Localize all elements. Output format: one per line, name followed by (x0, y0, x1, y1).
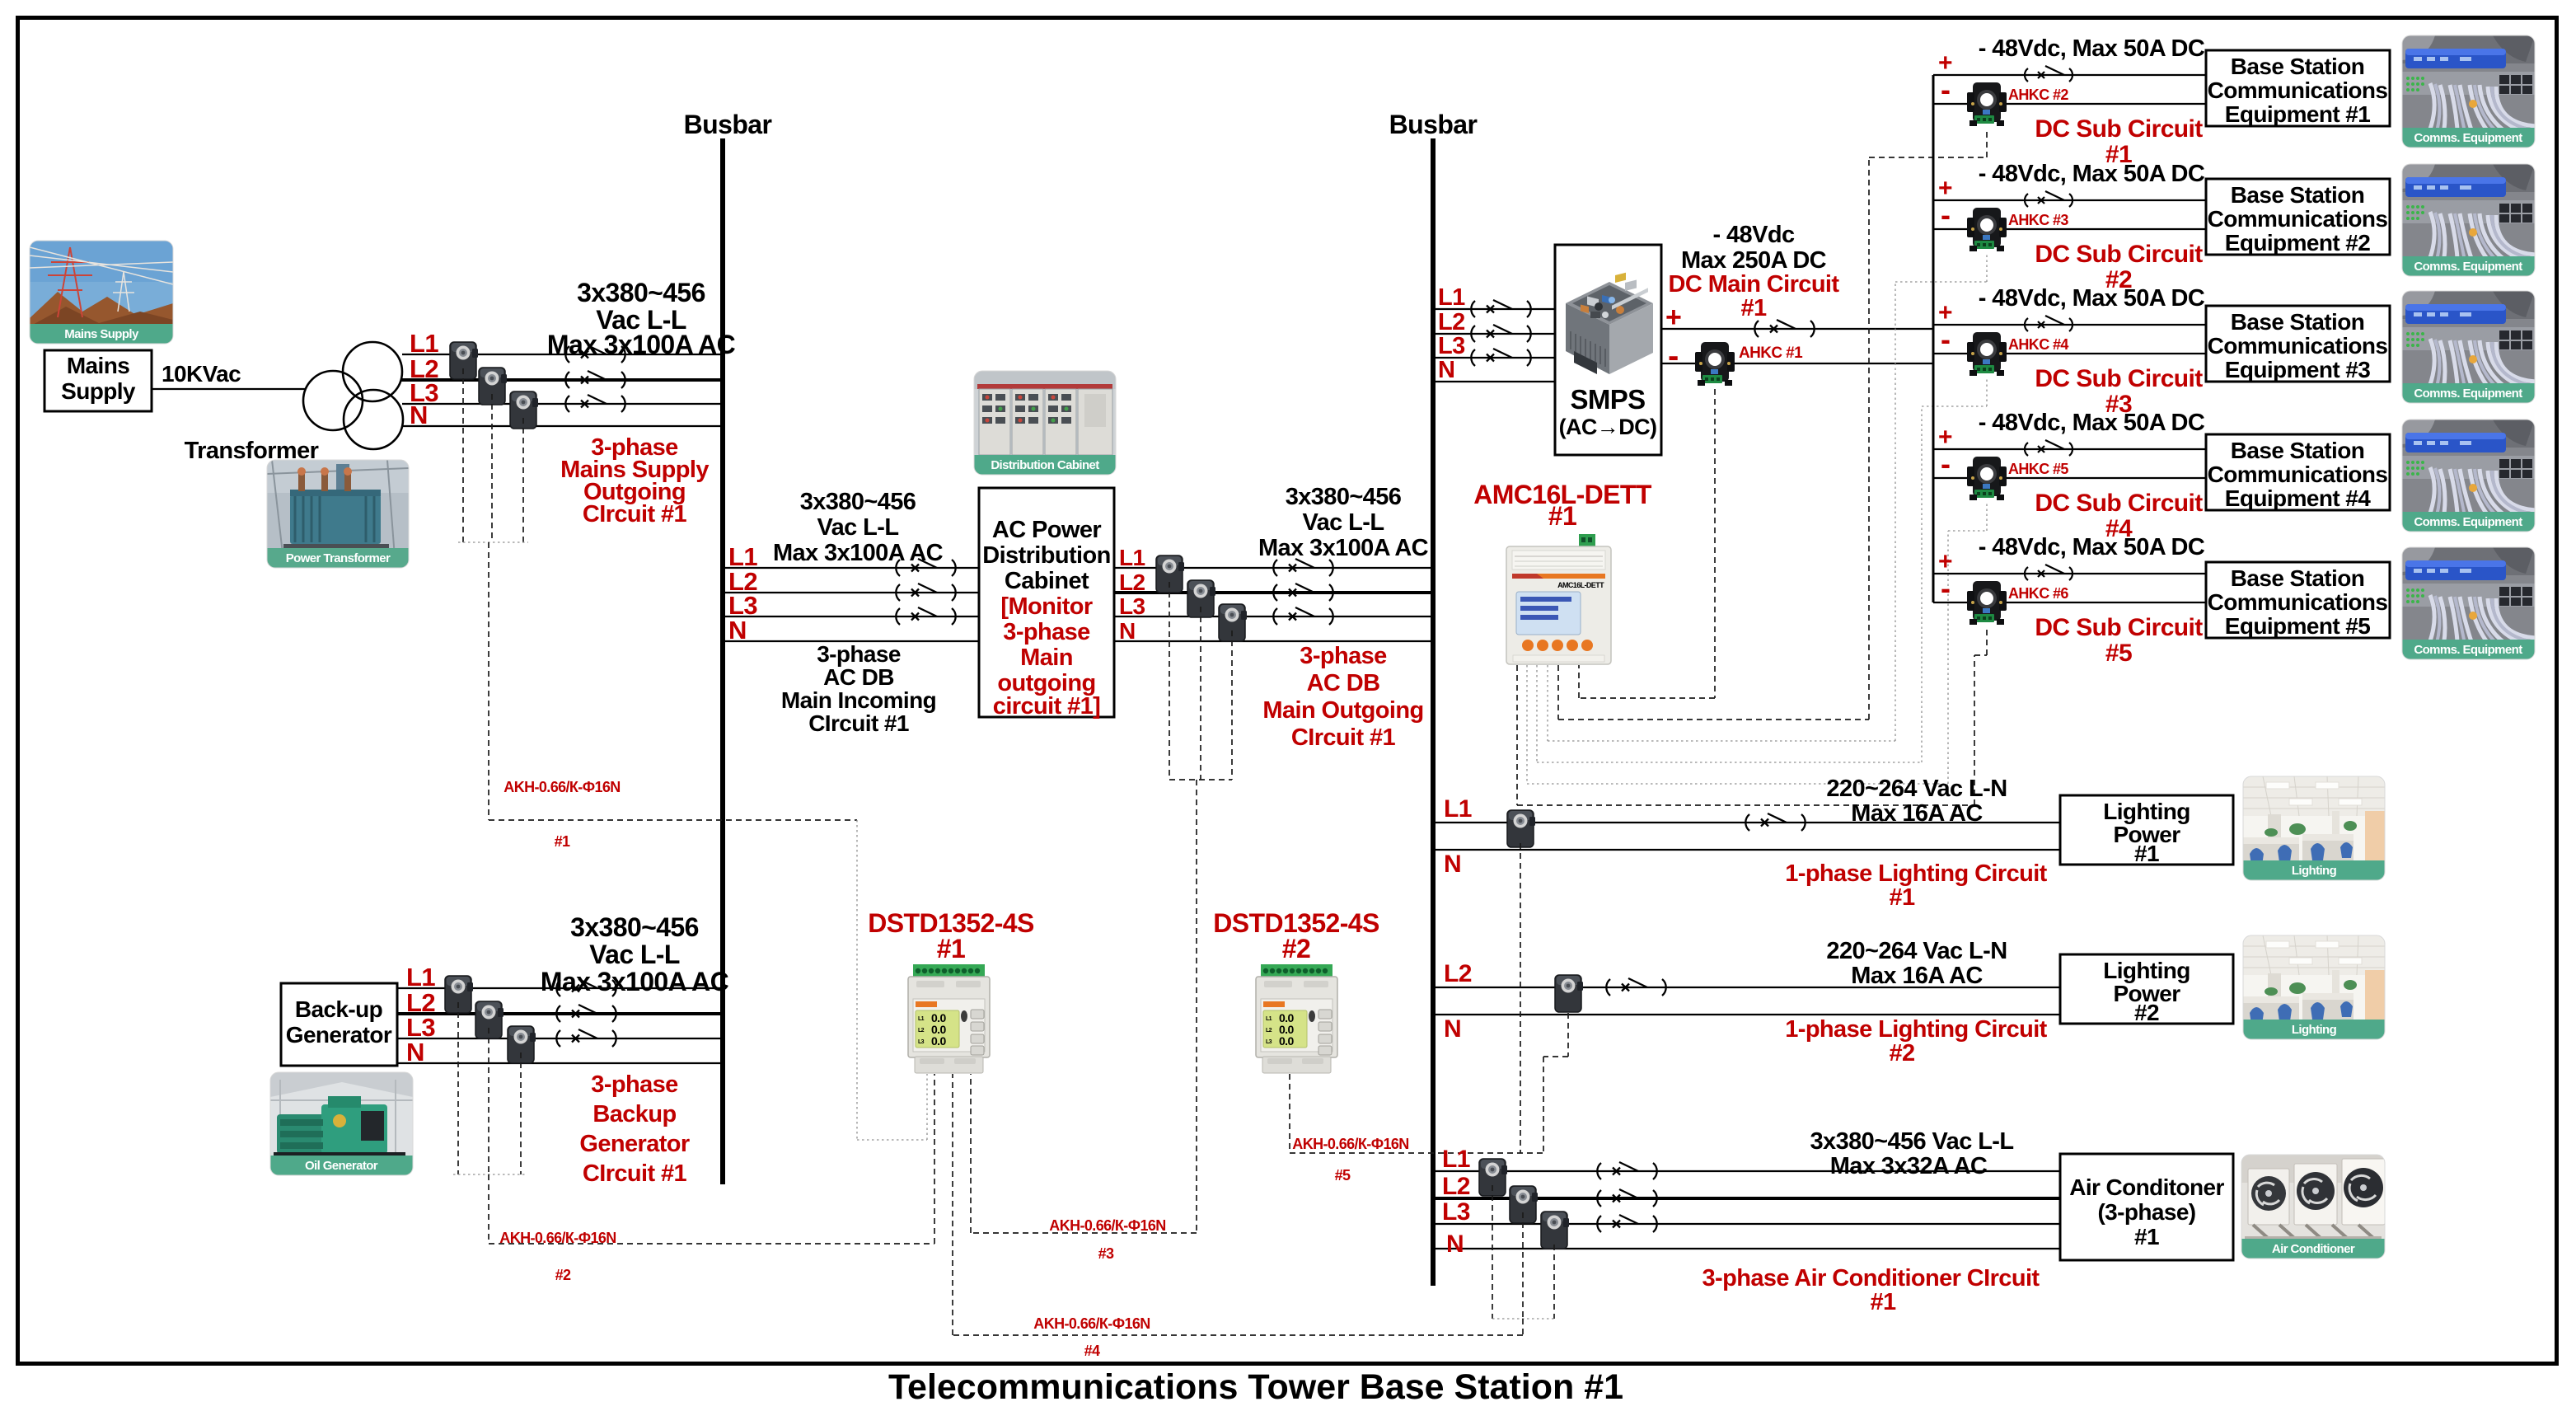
svg-text:Base Station: Base Station (2231, 309, 2364, 335)
svg-text:- 48Vdc, Max 50A DC: - 48Vdc, Max 50A DC (1979, 534, 2205, 560)
svg-text:Max 250A DC: Max 250A DC (1681, 247, 1827, 274)
svg-text:#1: #1 (1870, 1289, 1896, 1315)
svg-text:N: N (1444, 1015, 1461, 1043)
svg-text:Backup: Backup (592, 1101, 676, 1127)
svg-text:SMPS: SMPS (1570, 384, 1645, 415)
svg-text:AHKC #2: AHKC #2 (2008, 87, 2068, 103)
svg-text:L1: L1 (1442, 1146, 1470, 1173)
svg-text:L2: L2 (1438, 309, 1465, 335)
svg-text:L2: L2 (1444, 960, 1472, 987)
svg-text:L1: L1 (1444, 795, 1472, 823)
svg-text:circuit #1]: circuit #1] (993, 693, 1100, 720)
svg-text:3-phase: 3-phase (591, 1071, 678, 1098)
svg-text:-: - (1941, 73, 1950, 106)
svg-text:Base Station: Base Station (2231, 565, 2364, 591)
svg-text:Max 3x32A AC: Max 3x32A AC (1830, 1153, 1988, 1179)
svg-text:Distribution Cabinet: Distribution Cabinet (991, 458, 1099, 472)
svg-text:AKH-0.66/К-Ф16N: AKH-0.66/К-Ф16N (1033, 1315, 1150, 1332)
svg-text:AC Power: AC Power (992, 517, 1101, 543)
svg-text:Max 3x100A AC: Max 3x100A AC (1258, 535, 1429, 561)
svg-text:N: N (1438, 357, 1454, 383)
svg-text:Generator: Generator (579, 1131, 690, 1157)
svg-text:L1: L1 (1119, 545, 1145, 570)
svg-text:Vac L-L: Vac L-L (817, 514, 899, 541)
svg-text:3x380~456: 3x380~456 (800, 489, 916, 515)
svg-text:-: - (1941, 447, 1950, 480)
svg-text:-: - (1668, 338, 1679, 374)
svg-text:Max 3x100A AC: Max 3x100A AC (547, 330, 736, 359)
svg-text:3x380~456: 3x380~456 (570, 912, 699, 942)
svg-text:DC Sub Circuit: DC Sub Circuit (2035, 241, 2203, 268)
svg-text:N: N (1446, 1231, 1464, 1258)
svg-text:3x380~456: 3x380~456 (577, 278, 705, 307)
svg-text:(3-phase): (3-phase) (2097, 1199, 2195, 1225)
svg-text:Max 3x100A AC: Max 3x100A AC (773, 540, 944, 566)
svg-text:Equipment #1: Equipment #1 (2225, 101, 2370, 127)
svg-text:CIrcuit #1: CIrcuit #1 (583, 501, 687, 527)
svg-text:Mains: Mains (67, 353, 129, 378)
svg-text:#2: #2 (2134, 1000, 2159, 1025)
svg-text:L1: L1 (410, 329, 438, 358)
svg-text:-: - (1941, 322, 1950, 356)
svg-text:Equipment #5: Equipment #5 (2225, 613, 2370, 639)
svg-text:Main: Main (1020, 645, 1073, 671)
svg-text:Communications: Communications (2208, 462, 2388, 487)
svg-text:3-phase Air Conditioner CIrcui: 3-phase Air Conditioner CIrcuit (1703, 1265, 2040, 1291)
svg-text:Max 16A AC: Max 16A AC (1851, 800, 1983, 827)
svg-text:Busbar: Busbar (1389, 110, 1478, 139)
svg-text:Lighting: Lighting (2103, 799, 2190, 824)
svg-text:Main Outgoing: Main Outgoing (1262, 697, 1423, 724)
svg-text:220~264 Vac L-N: 220~264 Vac L-N (1826, 938, 2007, 964)
svg-text:N: N (728, 616, 747, 645)
svg-text:Communications: Communications (2208, 77, 2388, 103)
svg-text:-: - (1941, 198, 1950, 232)
svg-text:AKH-0.66/К-Ф16N: AKH-0.66/К-Ф16N (1292, 1136, 1408, 1152)
svg-text:(AC→DC): (AC→DC) (1559, 415, 1657, 439)
svg-text:N: N (1444, 851, 1461, 878)
svg-text:#1: #1 (1889, 884, 1915, 911)
svg-text:#2: #2 (1889, 1040, 1914, 1066)
svg-text:Base Station: Base Station (2231, 54, 2364, 79)
svg-text:#1: #1 (2134, 1224, 2159, 1249)
svg-text:Base Station: Base Station (2231, 438, 2364, 463)
svg-text:Base Station: Base Station (2231, 182, 2364, 208)
svg-text:1-phase Lighting Circuit: 1-phase Lighting Circuit (1785, 860, 2047, 887)
svg-text:10KVac: 10KVac (162, 361, 241, 387)
svg-text:DC Main Circuit: DC Main Circuit (1669, 271, 1840, 298)
svg-text:N: N (410, 401, 428, 429)
svg-text:Lighting: Lighting (2103, 958, 2190, 983)
svg-text:3-phase: 3-phase (1003, 619, 1090, 645)
svg-text:L2: L2 (1119, 570, 1145, 595)
svg-text:220~264 Vac L-N: 220~264 Vac L-N (1826, 776, 2007, 802)
svg-text:Generator: Generator (286, 1022, 392, 1048)
svg-text:Back-up: Back-up (295, 996, 382, 1022)
svg-text:Equipment #3: Equipment #3 (2225, 357, 2370, 382)
svg-text:AKH-0.66/К-Ф16N: AKH-0.66/К-Ф16N (503, 779, 620, 795)
svg-text:AHKC #3: AHKC #3 (2008, 212, 2068, 228)
svg-text:3-phase: 3-phase (817, 641, 901, 667)
svg-text:#2: #2 (1282, 934, 1310, 963)
svg-text:Communications: Communications (2208, 206, 2388, 232)
svg-text:CIrcuit #1: CIrcuit #1 (808, 710, 909, 736)
svg-text:3x380~456: 3x380~456 (1286, 484, 1402, 510)
svg-text:#3: #3 (1098, 1245, 1114, 1262)
svg-text:Air Conditioner: Air Conditioner (2272, 1242, 2355, 1256)
svg-text:#1: #1 (1740, 295, 1767, 321)
svg-text:3-phase: 3-phase (1300, 643, 1387, 669)
svg-text:#1: #1 (1548, 501, 1576, 531)
svg-text:- 48Vdc, Max 50A DC: - 48Vdc, Max 50A DC (1979, 285, 2205, 312)
svg-text:Telecommunications Tower Base: Telecommunications Tower Base Station #1 (888, 1367, 1623, 1407)
svg-text:Communications: Communications (2208, 333, 2388, 359)
svg-text:Max 3x100A AC: Max 3x100A AC (541, 967, 729, 996)
svg-text:#5: #5 (1335, 1167, 1351, 1184)
svg-text:Equipment #4: Equipment #4 (2225, 485, 2371, 511)
svg-text:[Monitor: [Monitor (1000, 593, 1092, 620)
svg-text:CIrcuit #1: CIrcuit #1 (1291, 724, 1396, 751)
svg-text:AHKC #1: AHKC #1 (1739, 345, 1803, 362)
svg-text:Vac L-L: Vac L-L (589, 940, 680, 969)
svg-text:L3: L3 (1438, 333, 1465, 359)
svg-text:#5: #5 (2105, 640, 2132, 667)
svg-text:#1: #1 (555, 833, 570, 850)
svg-text:Communications: Communications (2208, 589, 2388, 615)
svg-text:1-phase Lighting Circuit: 1-phase Lighting Circuit (1785, 1016, 2047, 1043)
svg-text:Air Conditoner: Air Conditoner (2069, 1174, 2224, 1200)
svg-text:N: N (406, 1038, 424, 1066)
svg-text:AC DB: AC DB (823, 664, 894, 690)
svg-text:Vac L-L: Vac L-L (1303, 509, 1384, 536)
svg-text:DC Sub Circuit: DC Sub Circuit (2035, 614, 2203, 641)
svg-text:L3: L3 (1119, 593, 1145, 619)
svg-text:#1: #1 (2134, 841, 2159, 866)
svg-text:Oil Generator: Oil Generator (305, 1159, 378, 1173)
svg-text:L3: L3 (1442, 1198, 1470, 1226)
svg-text:N: N (1119, 618, 1136, 644)
svg-text:Power Transformer: Power Transformer (286, 551, 391, 565)
svg-text:#4: #4 (1084, 1343, 1100, 1359)
svg-text:L2: L2 (1442, 1173, 1470, 1200)
svg-text:- 48Vdc, Max 50A DC: - 48Vdc, Max 50A DC (1979, 161, 2205, 187)
svg-text:L1: L1 (1438, 284, 1465, 311)
svg-text:AHKC #5: AHKC #5 (2008, 461, 2068, 477)
svg-text:AHKC #6: AHKC #6 (2008, 585, 2068, 602)
svg-text:Equipment #2: Equipment #2 (2225, 230, 2370, 255)
svg-text:L1: L1 (406, 963, 435, 991)
svg-text:DC Sub Circuit: DC Sub Circuit (2035, 365, 2203, 392)
svg-text:Busbar: Busbar (684, 110, 772, 139)
svg-text:- 48Vdc, Max 50A DC: - 48Vdc, Max 50A DC (1979, 410, 2205, 436)
svg-text:- 48Vdc, Max 50A DC: - 48Vdc, Max 50A DC (1979, 35, 2205, 62)
svg-text:DC Sub Circuit: DC Sub Circuit (2035, 490, 2203, 517)
svg-text:Cabinet: Cabinet (1005, 568, 1089, 594)
svg-text:Mains Supply: Mains Supply (64, 327, 139, 341)
svg-text:#1: #1 (937, 934, 965, 963)
svg-text:DC Sub Circuit: DC Sub Circuit (2035, 115, 2203, 143)
svg-text:Main Incoming: Main Incoming (781, 687, 936, 713)
svg-text:AKH-0.66/К-Ф16N: AKH-0.66/К-Ф16N (1049, 1217, 1165, 1234)
svg-text:CIrcuit #1: CIrcuit #1 (583, 1160, 687, 1187)
svg-text:Max 16A AC: Max 16A AC (1851, 963, 1983, 989)
svg-text:- 48Vdc: - 48Vdc (1713, 222, 1795, 248)
svg-text:AHKC #4: AHKC #4 (2008, 336, 2068, 353)
svg-text:+: + (1665, 302, 1681, 333)
svg-text:AC DB: AC DB (1307, 670, 1380, 696)
svg-text:3x380~456 Vac L-L: 3x380~456 Vac L-L (1810, 1128, 2014, 1155)
svg-text:Supply: Supply (61, 378, 136, 404)
svg-text:#2: #2 (555, 1267, 571, 1283)
svg-text:Distribution: Distribution (982, 542, 1111, 569)
svg-text:-: - (1941, 571, 1950, 605)
